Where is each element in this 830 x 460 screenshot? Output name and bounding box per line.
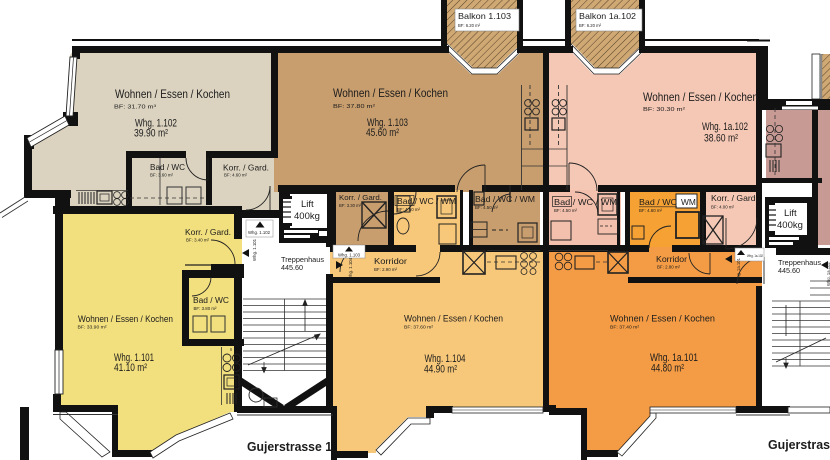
svg-text:BF: 6.20 m²: BF: 6.20 m² <box>458 23 480 28</box>
svg-text:Korridor: Korridor <box>374 257 407 266</box>
svg-text:Wohnen / Essen / Kochen: Wohnen / Essen / Kochen <box>610 314 715 325</box>
svg-text:Wohnen / Essen / Kochen: Wohnen / Essen / Kochen <box>78 314 173 325</box>
svg-text:Whg. 1.102: Whg. 1.102 <box>248 230 271 235</box>
svg-text:445.60: 445.60 <box>281 263 303 272</box>
svg-text:Whg. 1.103: Whg. 1.103 <box>338 253 361 258</box>
svg-text:BF: 4.50 m²: BF: 4.50 m² <box>554 208 577 213</box>
svg-text:Wohnen / Essen / Kochen: Wohnen / Essen / Kochen <box>115 87 230 101</box>
svg-text:39.90 m²: 39.90 m² <box>134 128 168 140</box>
svg-text:BF: 2.90 m²: BF: 2.90 m² <box>374 267 397 272</box>
svg-text:Lift: Lift <box>301 199 314 210</box>
svg-text:Balkon 1.103: Balkon 1.103 <box>458 11 511 21</box>
svg-text:Korr. / Gard.: Korr. / Gard. <box>711 193 758 203</box>
svg-text:Wohnen / Essen / Kochen: Wohnen / Essen / Kochen <box>643 90 758 104</box>
svg-text:Korr. / Gard.: Korr. / Gard. <box>223 163 269 173</box>
svg-text:44.90 m²: 44.90 m² <box>424 364 457 376</box>
svg-text:Bad / WC: Bad / WC <box>193 295 229 305</box>
svg-text:BF: 33.90 m²: BF: 33.90 m² <box>78 325 108 330</box>
svg-text:BF: 37.40 m²: BF: 37.40 m² <box>610 325 640 330</box>
svg-text:BF: 30.30 m²: BF: 30.30 m² <box>643 107 685 113</box>
svg-text:BF: 37.80 m²: BF: 37.80 m² <box>333 104 375 110</box>
svg-text:Bad / WC / WM: Bad / WC / WM <box>475 194 535 204</box>
svg-text:BF: 4.60 m²: BF: 4.60 m² <box>639 208 662 213</box>
svg-text:BF: 31.70 m³: BF: 31.70 m³ <box>114 105 156 111</box>
svg-text:Whg. 1.104: Whg. 1.104 <box>348 257 353 280</box>
svg-text:Whg. 1a.101: Whg. 1a.101 <box>736 257 741 282</box>
svg-text:Whg. 1a.102: Whg. 1a.102 <box>747 254 763 258</box>
svg-text:BF: 4.60 m²: BF: 4.60 m² <box>224 173 247 178</box>
svg-text:Whg. 1.101: Whg. 1.101 <box>252 238 257 261</box>
svg-text:Whg. 1a.102: Whg. 1a.102 <box>702 121 748 133</box>
svg-text:38.60 m²: 38.60 m² <box>704 133 738 145</box>
svg-text:BF: 2.80 m²: BF: 2.80 m² <box>657 265 680 270</box>
svg-text:Gujerstrasse 1: Gujerstrasse 1 <box>247 439 332 454</box>
svg-text:BF: 3.80 m²: BF: 3.80 m² <box>194 306 217 311</box>
svg-text:Wohnen / Essen / Kochen: Wohnen / Essen / Kochen <box>404 314 503 325</box>
svg-text:Korr. / Gard.: Korr. / Gard. <box>339 193 382 202</box>
svg-text:Korr. / Gard.: Korr. / Gard. <box>185 227 231 237</box>
svg-text:Wohnen / Essen / Kochen: Wohnen / Essen / Kochen <box>333 86 448 100</box>
svg-text:BF: 37.60 m²: BF: 37.60 m² <box>404 325 434 330</box>
svg-text:WM: WM <box>681 197 696 207</box>
svg-text:Gujerstras: Gujerstras <box>768 437 830 452</box>
svg-text:BF: 4.50 m²: BF: 4.50 m² <box>475 205 498 210</box>
svg-text:BF: 6.20 m²: BF: 6.20 m² <box>579 23 601 28</box>
svg-text:BF: 4.00 m²: BF: 4.00 m² <box>711 205 734 210</box>
svg-text:Bad / WC: Bad / WC <box>150 162 185 172</box>
svg-text:BF: 3.40 m²: BF: 3.40 m² <box>186 238 209 243</box>
svg-text:Bad / WC: Bad / WC <box>639 197 677 207</box>
svg-text:44.80 m²: 44.80 m² <box>651 363 684 375</box>
svg-text:Bad / WC / WM: Bad / WC / WM <box>554 197 617 207</box>
svg-text:Korridor: Korridor <box>656 255 687 264</box>
svg-text:41.10 m²: 41.10 m² <box>114 362 147 374</box>
svg-text:445.60: 445.60 <box>778 266 800 275</box>
svg-text:Whg. 1a.102: Whg. 1a.102 <box>826 262 830 286</box>
svg-text:400kg: 400kg <box>777 220 803 231</box>
svg-text:BF: 4.50 m²: BF: 4.50 m² <box>397 207 420 212</box>
svg-text:Balkon 1a.102: Balkon 1a.102 <box>579 11 636 21</box>
svg-text:45.60 m²: 45.60 m² <box>366 127 399 139</box>
svg-text:BF: 3.60 m²: BF: 3.60 m² <box>150 173 173 178</box>
svg-text:Bad / WC / WM: Bad / WC / WM <box>397 196 456 206</box>
svg-text:400kg: 400kg <box>294 211 320 222</box>
svg-text:Lift: Lift <box>784 208 797 219</box>
svg-text:BF: 3.30 m²: BF: 3.30 m² <box>339 203 361 208</box>
